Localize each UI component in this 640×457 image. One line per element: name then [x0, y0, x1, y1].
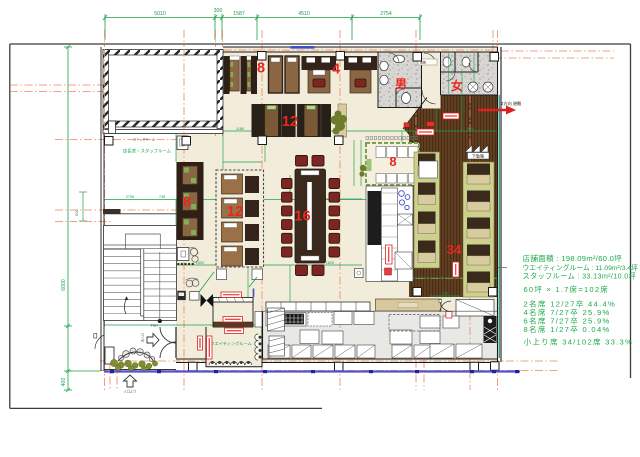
svg-text:4: 4 [332, 62, 340, 78]
svg-text:入口より: 入口より [124, 389, 137, 394]
svg-text:60坪 × 1.7席=102席: 60坪 × 1.7席=102席 [524, 284, 610, 294]
svg-text:小上り席 34/102席 33.3%: 小上り席 34/102席 33.3% [524, 337, 633, 347]
svg-text:2名席 12/27卒 44.4%: 2名席 12/27卒 44.4% [524, 299, 617, 309]
svg-text:8名席 1/27卒 0.04%: 8名席 1/27卒 0.04% [524, 324, 611, 334]
svg-text:下駄箱: 下駄箱 [472, 153, 484, 159]
svg-text:8: 8 [183, 195, 191, 211]
svg-text:1180: 1180 [236, 127, 244, 131]
svg-text:1800: 1800 [326, 261, 334, 265]
svg-text:4510: 4510 [298, 11, 310, 17]
svg-text:2754: 2754 [380, 11, 392, 17]
svg-text:1587: 1587 [233, 11, 245, 17]
svg-text:6000: 6000 [61, 279, 67, 291]
svg-text:12: 12 [227, 204, 243, 220]
svg-text:8: 8 [389, 154, 396, 169]
svg-text:4名席 7/27卒 25.9%: 4名席 7/27卒 25.9% [524, 307, 611, 317]
svg-text:745: 745 [159, 195, 165, 199]
svg-text:2方向 避難: 2方向 避難 [501, 100, 521, 107]
svg-text:スタッフルーム : 33.13m²/10.0坪: スタッフルーム : 33.13m²/10.0坪 [523, 272, 637, 281]
svg-text:6名席 7/27卒 25.9%: 6名席 7/27卒 25.9% [524, 316, 611, 326]
svg-text:900: 900 [467, 127, 473, 131]
svg-text:女: 女 [451, 78, 463, 93]
svg-text:ウエイティングルーム: ウエイティングルーム [210, 340, 251, 347]
svg-text:店舗面積 : 198.09m²/60.0坪: 店舗面積 : 198.09m²/60.0坪 [523, 253, 623, 263]
svg-text:店入口: 店入口 [140, 333, 145, 342]
svg-text:2795: 2795 [126, 195, 134, 199]
svg-text:16: 16 [294, 209, 310, 225]
svg-text:400: 400 [61, 378, 67, 387]
svg-text:12: 12 [282, 114, 298, 130]
svg-text:700: 700 [442, 292, 448, 296]
svg-text:5010: 5010 [154, 11, 166, 17]
svg-text:34: 34 [447, 242, 462, 257]
svg-text:300: 300 [214, 8, 223, 14]
svg-text:男: 男 [395, 77, 407, 91]
svg-text:8: 8 [257, 61, 265, 77]
svg-text:店長室・スタッフルーム: 店長室・スタッフルーム [123, 148, 172, 155]
svg-text:ストックルーム: ストックルーム [133, 137, 155, 142]
